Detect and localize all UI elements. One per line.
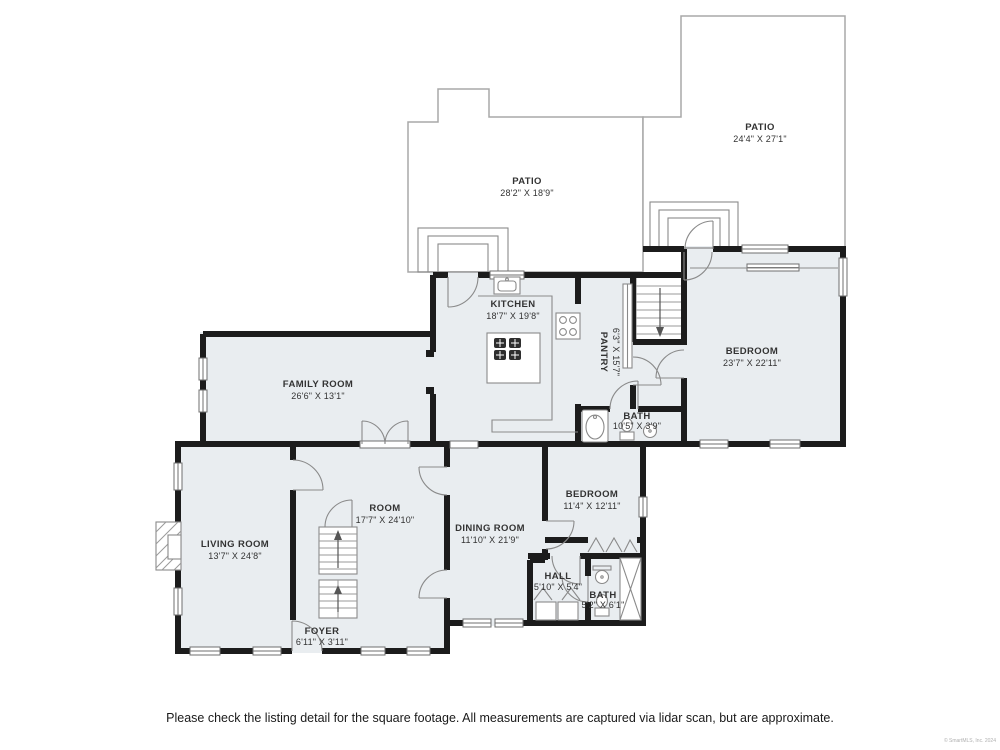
svg-text:6'3" X 15'7": 6'3" X 15'7" [611,328,621,376]
disclaimer-text: Please check the listing detail for the … [0,711,1000,725]
window [199,390,207,412]
wall-pier [426,350,434,357]
fireplace [156,522,181,570]
window [174,463,182,490]
wall-pier [426,387,434,394]
window [770,440,800,448]
svg-text:28'2" X 18'9": 28'2" X 18'9" [500,188,553,198]
copyright-text: © SmartMLS, Inc. 2024 [944,738,996,744]
staircase-upper [636,277,684,341]
svg-text:5'10" X 5'4": 5'10" X 5'4" [534,582,582,592]
svg-text:BEDROOM: BEDROOM [726,346,778,357]
svg-text:LIVING ROOM: LIVING ROOM [201,539,269,550]
svg-text:HALL: HALL [545,571,572,582]
window [700,440,728,448]
svg-text:13'7" X 24'8": 13'7" X 24'8" [208,551,261,561]
svg-text:11'4" X 12'11": 11'4" X 12'11" [563,501,620,511]
window [463,619,491,627]
svg-text:ROOM: ROOM [369,503,400,514]
svg-text:10'5" X 3'9": 10'5" X 3'9" [613,421,661,431]
pantry-shelf [623,284,632,368]
svg-text:23'7" X 22'11": 23'7" X 22'11" [723,358,781,368]
window [839,258,847,296]
window [361,647,385,655]
svg-text:6'11" X 3'11": 6'11" X 3'11" [296,637,348,647]
svg-text:18'7" X 19'8": 18'7" X 19'8" [486,311,539,321]
range-icon [556,313,580,339]
kitchen-island [487,333,540,383]
svg-text:17'7" X 24'10": 17'7" X 24'10" [356,515,415,525]
svg-text:24'4" X 27'1": 24'4" X 27'1" [733,134,786,144]
kitchen-sink-icon [494,277,520,294]
svg-text:KITCHEN: KITCHEN [490,299,535,310]
svg-text:11'10" X 21'9": 11'10" X 21'9" [461,535,519,545]
window [199,358,207,380]
window [174,588,182,615]
floor-plan-page: PATIO 28'2" X 18'9" PATIO 24'4" X 27'1" … [0,0,1000,750]
shower-closet-icon [620,558,641,620]
patio-right-outline [643,16,845,250]
window [742,245,788,253]
svg-text:PANTRY: PANTRY [598,332,609,373]
door-threshold [450,441,478,448]
svg-text:5'2" X 6'1": 5'2" X 6'1" [581,600,624,610]
floor-plan-canvas: PATIO 28'2" X 18'9" PATIO 24'4" X 27'1" … [0,0,1000,750]
svg-text:BEDROOM: BEDROOM [566,489,618,500]
svg-text:FOYER: FOYER [305,626,340,637]
window [190,647,220,655]
window [253,647,281,655]
svg-text:PATIO: PATIO [512,176,542,187]
svg-text:26'6" X 13'1": 26'6" X 13'1" [291,391,344,401]
svg-text:PATIO: PATIO [745,122,775,133]
room-label-pantry: PANTRY 6'3" X 15'7" [598,328,621,376]
svg-text:DINING ROOM: DINING ROOM [455,523,525,534]
svg-text:FAMILY ROOM: FAMILY ROOM [283,379,353,390]
window [407,647,430,655]
window [495,619,523,627]
bathtub-icon [582,410,608,442]
staircase-main [319,527,357,618]
window [639,497,647,517]
